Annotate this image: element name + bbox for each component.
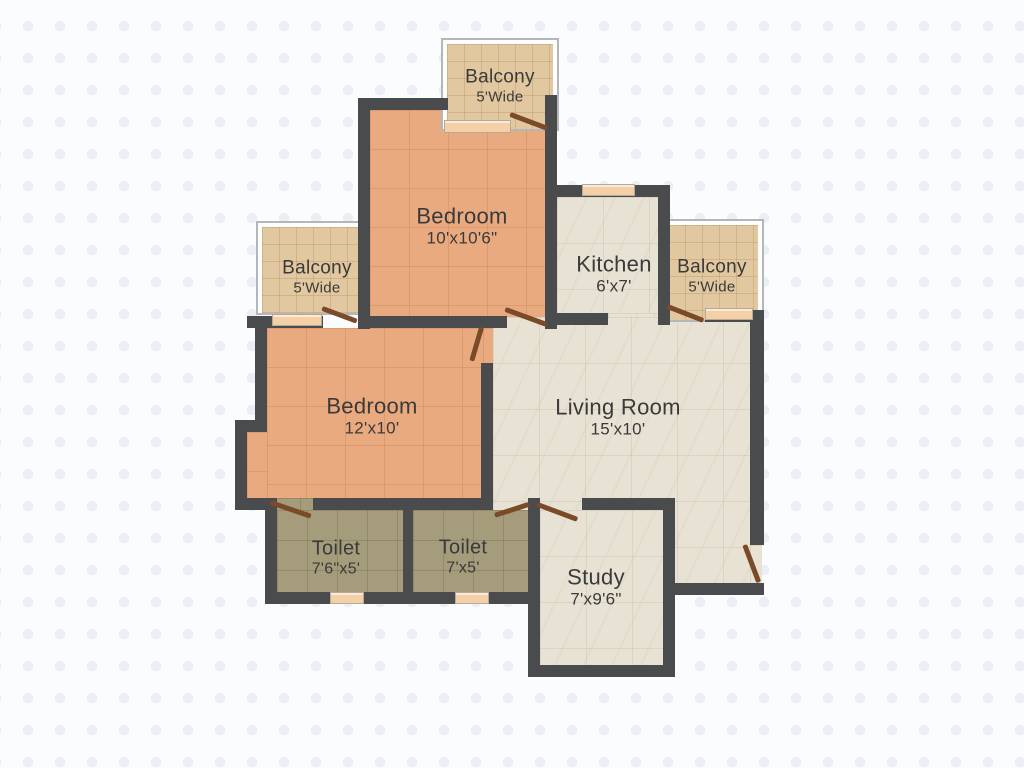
balcony-top-dims: 5'Wide [465, 88, 535, 105]
wall-bedroom2-left [255, 316, 267, 432]
label-bedroom-2: Bedroom 12'x10' [326, 394, 417, 439]
label-balcony-top: Balcony 5'Wide [465, 66, 535, 105]
wall-study-right [663, 498, 675, 677]
wall-living-right [750, 310, 764, 545]
bedroom-2-door-opening [483, 328, 493, 363]
toilet-2-dims: 7'x5' [439, 559, 488, 577]
study-dims: 7'x9'6" [567, 590, 625, 610]
wall-study-top [582, 498, 675, 510]
room-bedroom-2-floor-nook [247, 432, 267, 498]
bedroom-1-dims: 10'x10'6" [416, 229, 507, 249]
label-study: Study 7'x9'6" [567, 565, 625, 610]
window-balcony-top [444, 120, 511, 133]
wall-between-toilets [403, 498, 413, 604]
label-living-room: Living Room 15'x10' [555, 395, 681, 440]
wall-mid-center [358, 316, 507, 328]
floor-plan: Balcony 5'Wide Bedroom 10'x10'6" Kitchen… [0, 0, 1024, 768]
wall-toilet1-left [265, 498, 277, 604]
label-bedroom-1: Bedroom 10'x10'6" [416, 204, 507, 249]
window-balcony-right [705, 308, 753, 320]
balcony-left-dims: 5'Wide [282, 279, 352, 296]
toilet-2-name: Toilet [439, 536, 488, 559]
toilet-1-dims: 7'6"x5' [312, 560, 361, 578]
study-name: Study [567, 565, 625, 590]
wall-study-bottom [528, 665, 675, 677]
kitchen-dims: 6'x7' [576, 277, 651, 297]
bedroom-1-name: Bedroom [416, 204, 507, 229]
balcony-right-name: Balcony [677, 256, 747, 278]
window-balcony-left [272, 314, 322, 326]
living-room-name: Living Room [555, 395, 681, 420]
label-balcony-left: Balcony 5'Wide [282, 257, 352, 296]
wall-exterior-lower-left [235, 420, 247, 510]
window-toilet-1 [330, 592, 364, 604]
kitchen-name: Kitchen [576, 252, 651, 277]
label-balcony-right: Balcony 5'Wide [677, 256, 747, 295]
wall-bedroom1-left [358, 98, 370, 329]
bedroom-2-name: Bedroom [326, 394, 417, 419]
balcony-right-dims: 5'Wide [677, 278, 747, 295]
window-kitchen [582, 184, 635, 196]
wall-study-left [528, 498, 540, 677]
label-toilet-1: Toilet 7'6"x5' [312, 537, 361, 578]
wall-bedroom1-right [545, 95, 557, 329]
balcony-top-name: Balcony [465, 66, 535, 88]
wall-bedroom1-top [358, 98, 448, 110]
label-toilet-2: Toilet 7'x5' [439, 536, 488, 577]
balcony-left-name: Balcony [282, 257, 352, 279]
label-kitchen: Kitchen 6'x7' [576, 252, 651, 297]
toilet-1-name: Toilet [312, 537, 361, 560]
window-toilet-2 [455, 592, 489, 604]
living-room-dims: 15'x10' [555, 420, 681, 440]
wall-living-bottom [663, 583, 764, 595]
bedroom-2-dims: 12'x10' [326, 419, 417, 439]
wall-bedroom2-right [481, 363, 493, 510]
